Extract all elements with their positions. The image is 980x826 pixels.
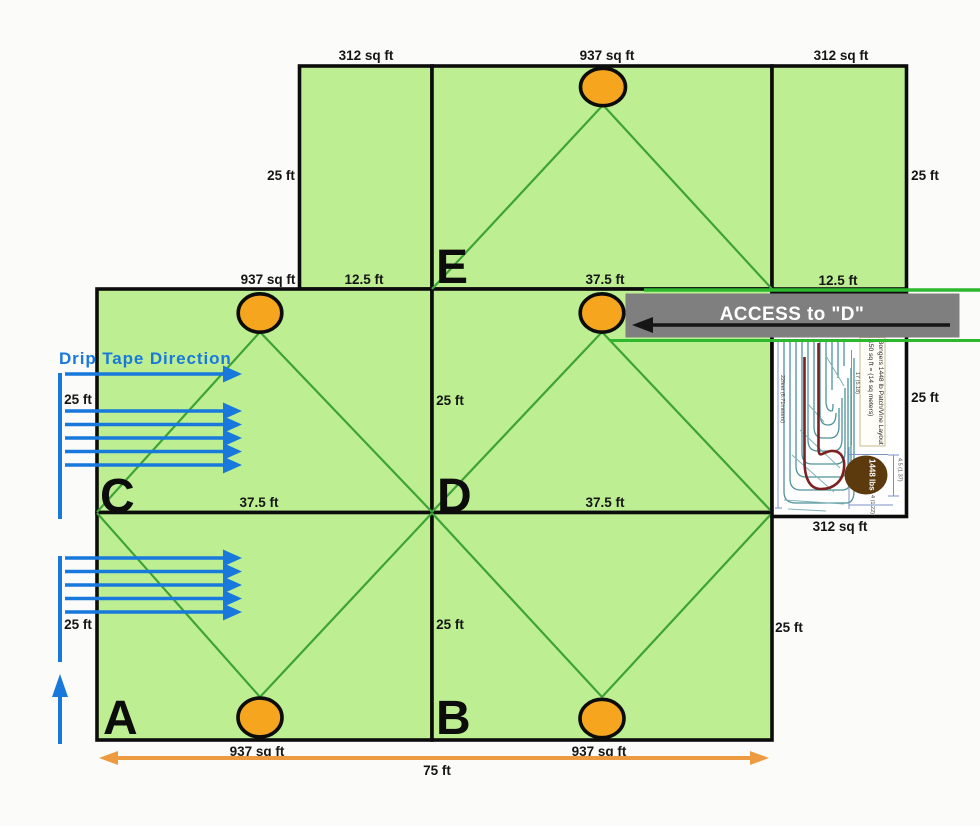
svg-text:312 sq ft: 312 sq ft — [339, 48, 394, 63]
svg-text:A: A — [103, 692, 138, 745]
svg-text:B: B — [436, 692, 471, 745]
svg-text:C: C — [100, 470, 135, 523]
svg-text:1448 lbs: 1448 lbs — [868, 459, 877, 491]
svg-text:25 ft: 25 ft — [436, 617, 464, 632]
svg-text:25 ft: 25 ft — [267, 168, 295, 183]
svg-text:ACCESS to "D": ACCESS to "D" — [720, 304, 865, 325]
svg-text:37.5 ft: 37.5 ft — [585, 495, 625, 510]
svg-text:17 (5.18): 17 (5.18) — [854, 372, 860, 394]
svg-text:25 ft: 25 ft — [436, 393, 464, 408]
svg-text:75 ft: 75 ft — [423, 763, 451, 778]
svg-text:37.5 ft: 37.5 ft — [239, 495, 279, 510]
svg-text:25 ft: 25 ft — [911, 390, 939, 405]
svg-text:E: E — [436, 241, 468, 294]
svg-text:150 sq ft = (14 sq meters): 150 sq ft = (14 sq meters) — [867, 340, 874, 416]
svg-text:D: D — [437, 470, 472, 523]
svg-text:937 sq ft: 937 sq ft — [241, 272, 296, 287]
svg-text:25 ft: 25 ft — [911, 168, 939, 183]
svg-text:25 ft: 25 ft — [64, 617, 92, 632]
svg-text:12.5 ft: 12.5 ft — [344, 272, 384, 287]
svg-text:937 sq ft: 937 sq ft — [580, 48, 635, 63]
svg-text:312 sq ft: 312 sq ft — [814, 48, 869, 63]
svg-text:Drip Tape Direction: Drip Tape Direction — [59, 349, 232, 368]
svg-text:25 ft: 25 ft — [775, 620, 803, 635]
svg-text:4.5 (1.37): 4.5 (1.37) — [897, 458, 903, 482]
svg-text:4 (1.22): 4 (1.22) — [869, 495, 875, 514]
svg-text:312 sq ft: 312 sq ft — [813, 519, 868, 534]
svg-text:Bongers 1448 lb Patch/Vine Lay: Bongers 1448 lb Patch/Vine Layout — [877, 340, 884, 445]
svg-text:37.5 ft: 37.5 ft — [585, 272, 625, 287]
svg-text:12.5 ft: 12.5 ft — [818, 273, 858, 288]
svg-text:25 ft: 25 ft — [64, 392, 92, 407]
svg-text:22feet (6.71meters): 22feet (6.71meters) — [779, 375, 785, 423]
